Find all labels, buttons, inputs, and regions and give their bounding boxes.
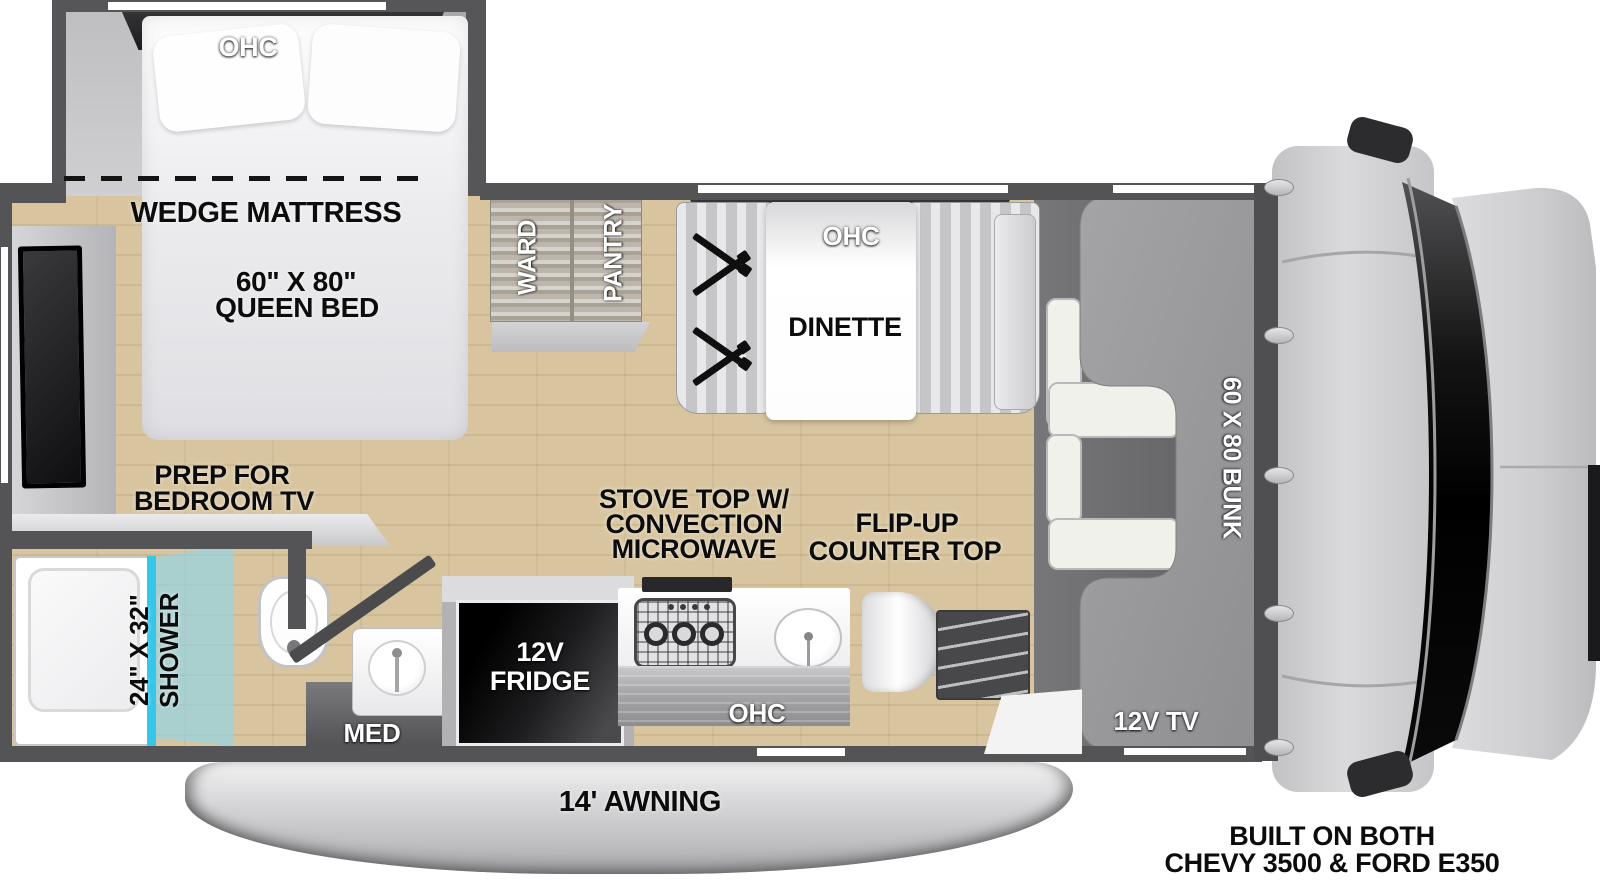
window-bottom-cab <box>1124 748 1246 755</box>
kitchen-ohc-label: OHC <box>720 699 794 727</box>
bath-faucet-icon <box>392 648 402 658</box>
bedroom-window <box>108 2 386 10</box>
rivet-5 <box>1264 739 1294 756</box>
window-top-cab <box>1113 185 1259 193</box>
fridge-label-line2: FRIDGE <box>480 667 600 695</box>
cab-tv-label: 12V TV <box>1100 707 1212 735</box>
burner-3 <box>700 622 724 646</box>
stove-knob-2 <box>680 604 686 610</box>
rv-floorplan: 14' AWNING OHC WEDGE MATTRESS 60" X 80" … <box>0 0 1600 888</box>
chassis-note-line1: BUILT ON BOTH <box>1182 823 1482 850</box>
stove-knob-1 <box>668 604 674 610</box>
entry-steps <box>936 610 1030 700</box>
window-top-dinette <box>698 185 1008 193</box>
flip-up-counter <box>862 592 942 692</box>
burner-2 <box>672 622 696 646</box>
bunk-label: 60 X 80 BUNK <box>1214 358 1248 558</box>
stove-knob-3 <box>692 604 698 610</box>
dinette-end-panel <box>994 214 1036 410</box>
dinette-label: DINETTE <box>768 313 922 341</box>
pantry-label: PANTRY <box>598 184 630 322</box>
dinette-ohc-label: OHC <box>814 222 888 250</box>
flip-counter-label-line2: COUNTER TOP <box>805 538 1005 564</box>
microwave-hood <box>642 577 732 592</box>
truck-cab-front <box>1240 110 1600 820</box>
bed-type-label: QUEEN BED <box>187 294 407 322</box>
grille-edge <box>1588 465 1600 661</box>
awning-label: 14' AWNING <box>545 787 735 817</box>
med-label: MED <box>330 719 414 747</box>
bath-faucet-stem <box>395 658 399 692</box>
window-left <box>1 247 8 483</box>
shower-size-label: 24" X 32" <box>124 576 154 724</box>
bedroom-tv <box>18 245 86 488</box>
bedroom-ohc-label: OHC <box>186 32 310 62</box>
slideout-dashed-line <box>64 176 426 181</box>
stove-label-line3: MICROWAVE <box>584 536 804 562</box>
stove-knob-4 <box>704 604 710 610</box>
pillow-right <box>307 23 462 133</box>
ward-pantry-divider <box>570 194 574 322</box>
rivet-2 <box>1264 327 1294 344</box>
bathroom-wall-right <box>288 531 306 629</box>
cab-roof <box>1272 146 1434 792</box>
ward-label: WARD <box>512 198 544 316</box>
chassis-note-line2: CHEVY 3500 & FORD E350 <box>1132 850 1532 877</box>
flip-counter-label-line1: FLIP-UP <box>807 510 1007 536</box>
tv-prep-label-line1: PREP FOR <box>132 462 312 488</box>
rivet-3 <box>1264 467 1294 484</box>
wedge-mattress-label: WEDGE MATTRESS <box>86 198 446 228</box>
kitchen-faucet-icon <box>804 632 813 641</box>
shower-label: SHOWER <box>154 576 184 724</box>
rivet-4 <box>1264 605 1294 622</box>
ward-pantry-base <box>492 322 650 352</box>
burner-1 <box>644 622 668 646</box>
awning <box>185 762 1073 874</box>
rivet-1 <box>1264 179 1294 196</box>
fridge-label-line1: 12V <box>480 638 600 666</box>
tv-prep-label-line2: BEDROOM TV <box>114 488 334 514</box>
window-bottom-kitchen <box>757 748 845 756</box>
dinette-bench-left <box>676 202 772 414</box>
bathroom-wall-top <box>0 531 312 549</box>
fridge-cabinet-top <box>442 576 634 602</box>
